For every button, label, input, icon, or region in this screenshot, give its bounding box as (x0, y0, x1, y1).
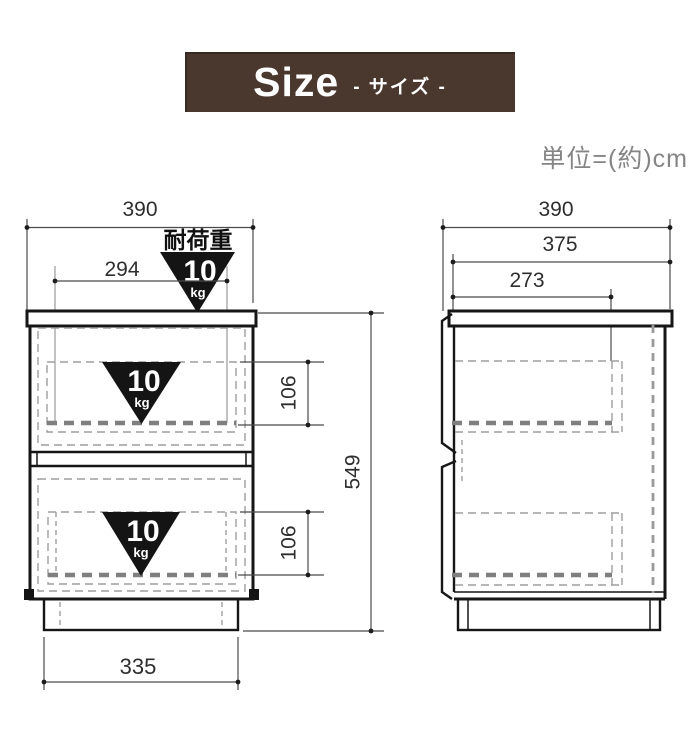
base-width-label: 335 (120, 654, 157, 679)
side-inner-depth-label: 273 (509, 269, 544, 292)
front-outer-width-label: 390 (122, 198, 157, 221)
front-upper-drawer-height-dimension: 106 (238, 360, 324, 428)
front-base-width-dimension: 335 (42, 637, 241, 690)
side-topboard-depth-dimension: 375 (451, 233, 673, 311)
dimension-drawing: 390 耐荷重 10 kg 294 (0, 0, 700, 750)
side-base-plinth (458, 599, 660, 630)
upper-drawer-load-value: 10 (127, 365, 160, 398)
load-unit: kg (190, 285, 205, 300)
front-overall-height-dimension: 549 (243, 311, 384, 634)
front-base-plinth (44, 599, 238, 630)
side-cabinet-outline (442, 311, 672, 599)
lower-drawer-load-unit: kg (133, 545, 148, 560)
lower-drawer-height-label: 106 (278, 525, 301, 560)
front-view: 390 耐荷重 10 kg 294 (24, 198, 384, 690)
page-root: { "header": { "title": "Size", "subtitle… (0, 0, 700, 750)
side-upper-drawer-interior (452, 361, 623, 432)
overall-height-label: 549 (342, 454, 365, 489)
upper-drawer-height-label: 106 (278, 375, 301, 410)
upper-drawer-load-unit: kg (134, 395, 149, 410)
front-lower-drawer-height-dimension: 106 (238, 510, 324, 578)
load-capacity-label: 耐荷重 (164, 227, 233, 253)
front-lower-drawer-interior: 10 kg (38, 479, 245, 591)
side-lower-drawer-interior (452, 513, 623, 585)
lower-drawer-load-value: 10 (126, 515, 159, 548)
load-value: 10 (183, 255, 216, 288)
front-inner-width-label: 294 (104, 258, 139, 281)
side-view: 390 375 273 (441, 198, 673, 630)
side-topboard-depth-label: 375 (542, 233, 577, 256)
side-outer-depth-label: 390 (538, 198, 573, 221)
front-upper-drawer-interior: 10 kg (38, 328, 245, 445)
load-capacity-callout: 耐荷重 10 kg (160, 227, 235, 313)
